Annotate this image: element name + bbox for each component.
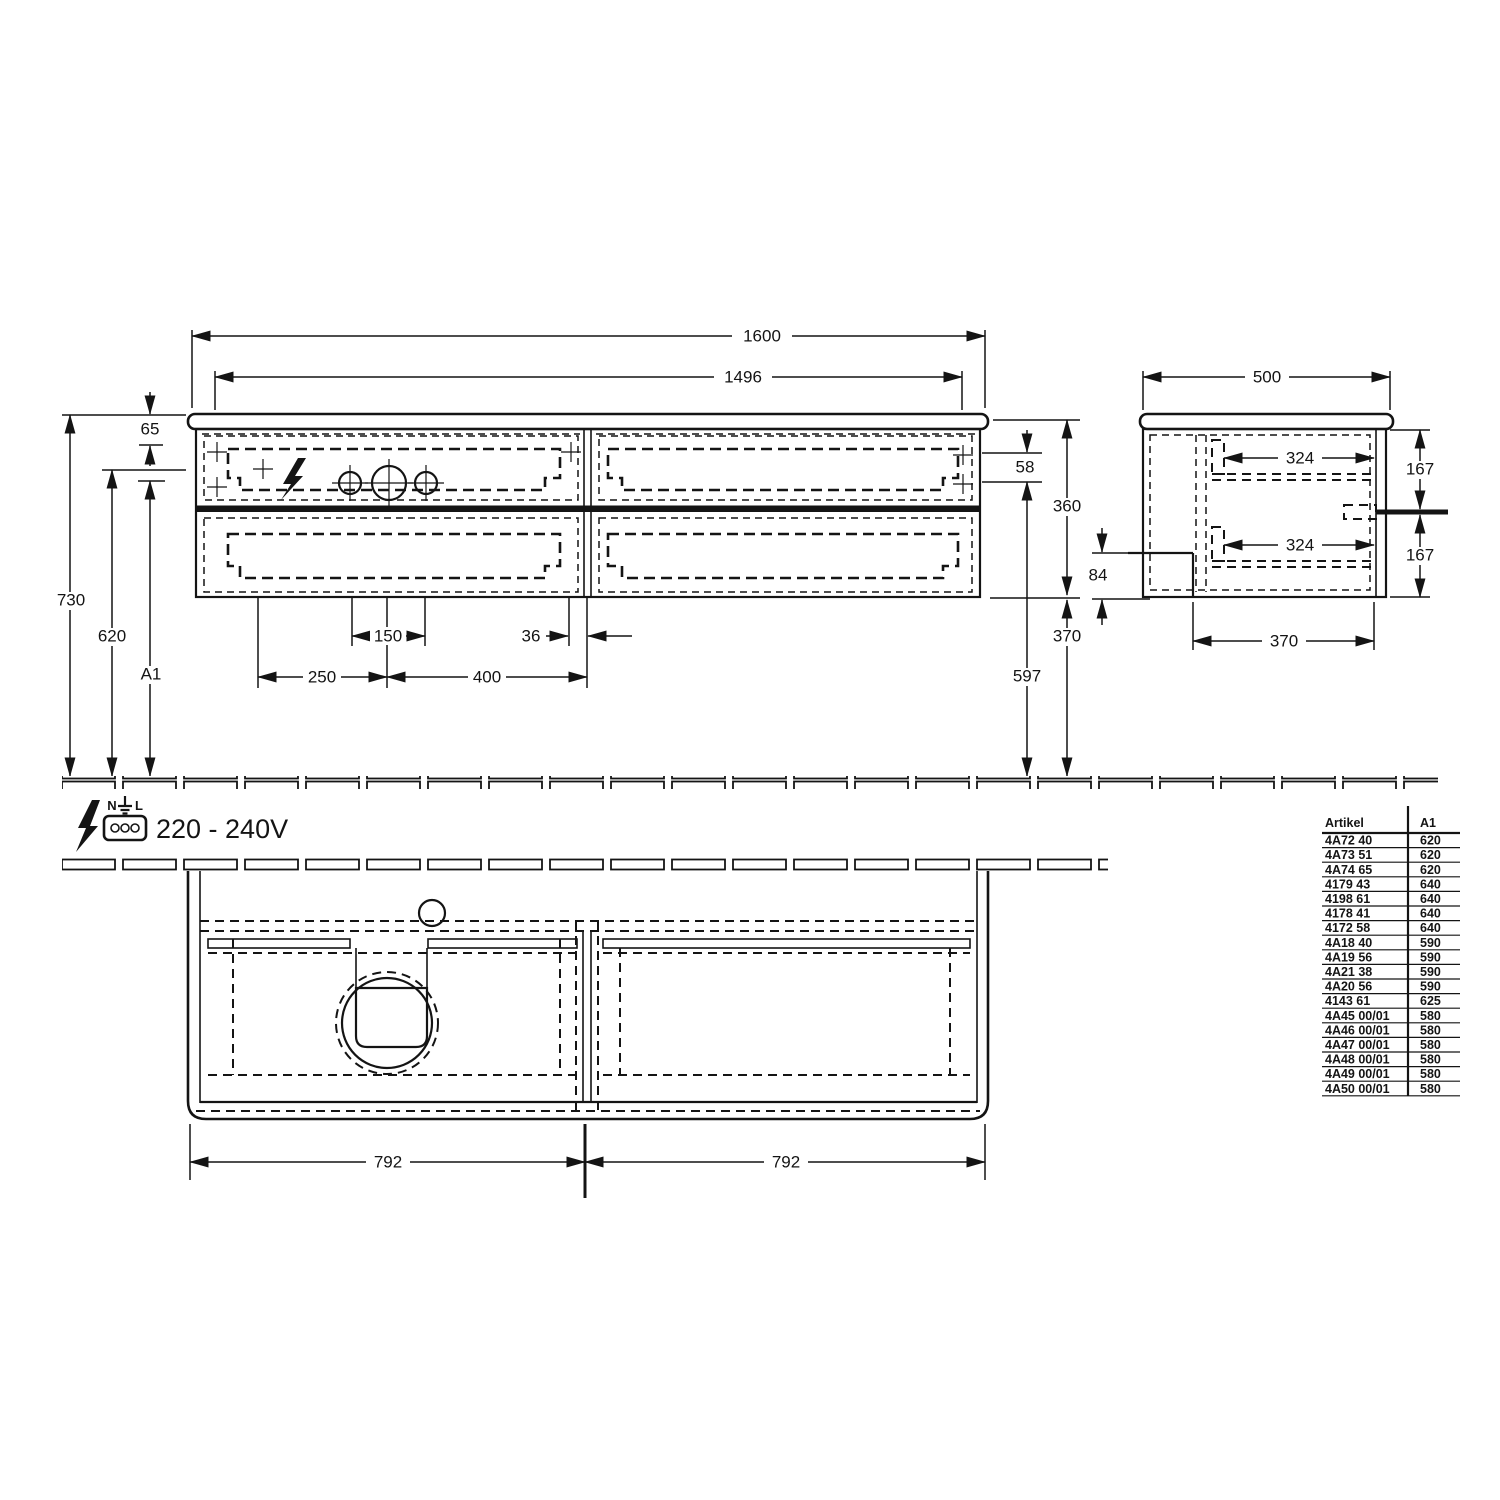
table-header-artikel: Artikel	[1325, 816, 1364, 830]
drain-outline	[356, 988, 427, 1047]
front-dimensions: 1600 1496 730 620 A1 65 58 597	[49, 327, 1089, 777]
table-cell-a1: 580	[1420, 1067, 1441, 1081]
table-cell-artikel: 4143 61	[1325, 994, 1370, 1008]
countertop-side	[1140, 414, 1393, 429]
table-cell-a1: 640	[1420, 892, 1441, 906]
dim-label-620: 620	[98, 627, 126, 646]
drawer-split-band	[196, 506, 980, 513]
table-cell-a1: 590	[1420, 936, 1441, 950]
countertop-plan-outline	[188, 871, 988, 1119]
faucet-hole-plan	[419, 900, 445, 926]
technical-drawing-page: 1600 1496 730 620 A1 65 58 597	[0, 0, 1500, 1500]
wall-bracket	[1344, 505, 1376, 519]
table-cell-a1: 625	[1420, 994, 1441, 1008]
table-cell-artikel: 4A18 40	[1325, 936, 1372, 950]
table-cell-artikel: 4178 41	[1325, 907, 1370, 921]
drawer-dashed-outline	[204, 518, 578, 592]
table-cell-artikel: 4A46 00/01	[1325, 1023, 1390, 1037]
table-cell-a1: 640	[1420, 877, 1441, 891]
countertop-front	[188, 414, 988, 429]
drawer-side-rail	[428, 939, 577, 948]
floor-line-hatch	[62, 776, 1438, 789]
dim-label-730: 730	[57, 591, 85, 610]
dim-label-792-right: 792	[772, 1153, 800, 1172]
drawer-dashed-outline	[599, 518, 972, 592]
table-cell-artikel: 4172 58	[1325, 921, 1370, 935]
corner-cross-marks	[953, 445, 973, 494]
line-label: L	[135, 798, 143, 813]
dim-label-370-side: 370	[1270, 632, 1298, 651]
table-header-a1: A1	[1420, 816, 1436, 830]
table-cell-artikel: 4A45 00/01	[1325, 1009, 1390, 1023]
vanity-technical-drawing: 1600 1496 730 620 A1 65 58 597	[0, 0, 1500, 1500]
table-cell-a1: 590	[1420, 965, 1441, 979]
table-cell-artikel: 4A74 65	[1325, 863, 1372, 877]
ground-symbol-icon	[118, 796, 132, 814]
table-cell-artikel: 4A20 56	[1325, 980, 1372, 994]
power-symbol: N L 220 - 240V	[76, 796, 288, 852]
article-table: Artikel A1 4A72 40620 4A73 51620 4A74 65…	[1322, 806, 1460, 1096]
table-cell-artikel: 4A48 00/01	[1325, 1053, 1390, 1067]
bottom-recess	[1128, 553, 1193, 597]
table-cell-a1: 640	[1420, 907, 1441, 921]
drawer-profile	[228, 449, 560, 490]
drawer-profile	[608, 534, 958, 578]
table-cell-a1: 580	[1420, 1009, 1441, 1023]
table-cell-a1: 620	[1420, 863, 1441, 877]
dim-label-250: 250	[308, 668, 336, 687]
dim-label-167-bottom: 167	[1406, 546, 1434, 565]
table-cell-artikel: 4A72 40	[1325, 834, 1372, 848]
dim-label-400: 400	[473, 668, 501, 687]
dim-label-792-left: 792	[374, 1153, 402, 1172]
dim-label-1496: 1496	[724, 368, 762, 387]
dim-label-84: 84	[1089, 566, 1108, 585]
drawer-profile	[228, 534, 560, 578]
table-cell-a1: 640	[1420, 921, 1441, 935]
dim-label-a1: A1	[141, 665, 162, 684]
table-cell-artikel: 4A73 51	[1325, 848, 1372, 862]
dim-label-167-top: 167	[1406, 460, 1434, 479]
table-cell-artikel: 4A19 56	[1325, 950, 1372, 964]
neutral-label: N	[107, 798, 116, 813]
drawer-profile	[608, 449, 958, 490]
side-dimensions: 500 324 324 167 167 84 370	[1083, 368, 1442, 651]
table-cell-a1: 580	[1420, 1053, 1441, 1067]
dim-label-597: 597	[1013, 667, 1041, 686]
dim-label-36: 36	[522, 627, 541, 646]
table-cell-a1: 590	[1420, 950, 1441, 964]
table-cell-a1: 580	[1420, 1038, 1441, 1052]
dim-label-360: 360	[1053, 497, 1081, 516]
dim-label-58: 58	[1016, 458, 1035, 477]
drawer-side-rail	[208, 939, 350, 948]
table-cell-artikel: 4179 43	[1325, 877, 1370, 891]
lightning-bolt-icon	[76, 800, 100, 852]
voltage-label: 220 - 240V	[156, 814, 288, 844]
table-cell-artikel: 4A47 00/01	[1325, 1038, 1390, 1052]
drawer-bracket	[1212, 527, 1224, 561]
dim-label-1600: 1600	[743, 327, 781, 346]
plan-dimensions: 792 792	[190, 1124, 985, 1198]
front-view	[188, 414, 988, 597]
table-cell-artikel: 4A49 00/01	[1325, 1067, 1390, 1081]
plan-view	[188, 871, 988, 1119]
drawer-bracket	[1212, 440, 1224, 474]
table-cell-artikel: 4198 61	[1325, 892, 1370, 906]
table-cell-a1: 620	[1420, 848, 1441, 862]
table-cell-a1: 580	[1420, 1023, 1441, 1037]
table-cell-artikel: 4A50 00/01	[1325, 1082, 1390, 1096]
table-cell-a1: 580	[1420, 1082, 1441, 1096]
dim-label-324-top: 324	[1286, 449, 1314, 468]
table-cell-a1: 590	[1420, 980, 1441, 994]
dim-label-65: 65	[141, 420, 160, 439]
dim-label-500: 500	[1253, 368, 1281, 387]
lightning-bolt-icon	[281, 458, 306, 500]
drawer-side-rail	[603, 939, 970, 948]
side-view	[1128, 414, 1448, 597]
dim-label-150: 150	[374, 627, 402, 646]
dim-label-370: 370	[1053, 627, 1081, 646]
wall-line-hatch	[62, 858, 1108, 871]
table-cell-artikel: 4A21 38	[1325, 965, 1372, 979]
cabinet-side-outline	[1143, 429, 1386, 597]
dim-label-324-bottom: 324	[1286, 536, 1314, 555]
table-cell-a1: 620	[1420, 834, 1441, 848]
cabinet-front-outline	[196, 429, 980, 597]
